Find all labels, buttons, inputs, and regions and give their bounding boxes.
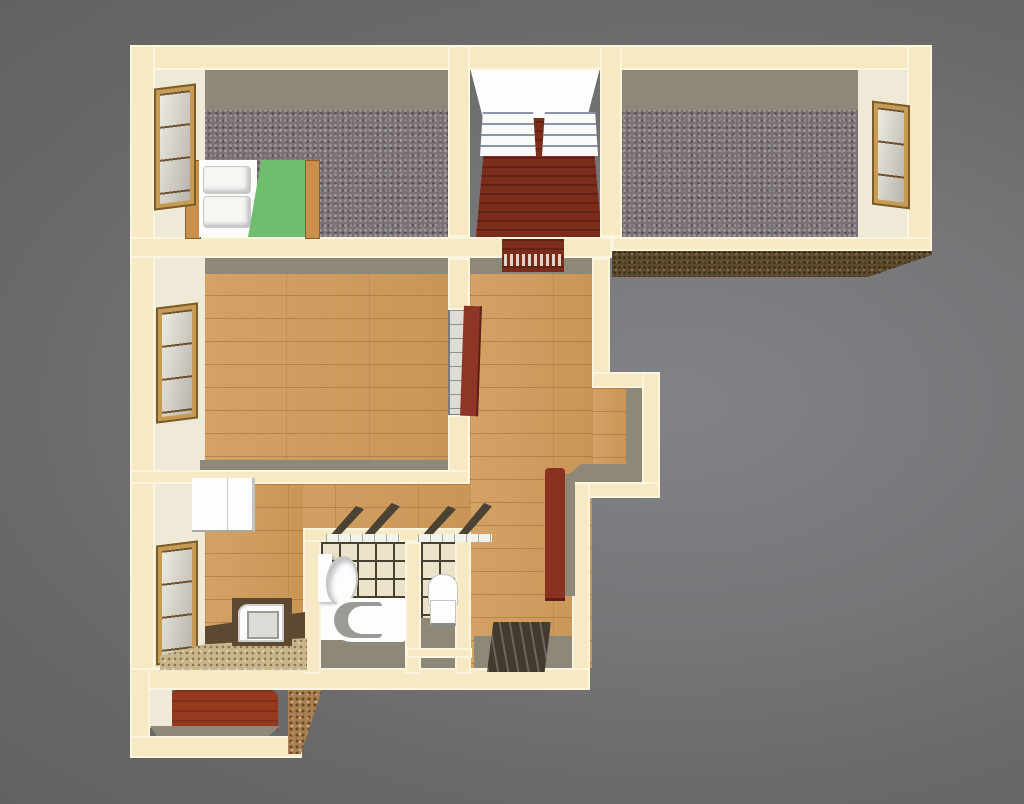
bed-pillow-bottom <box>203 196 251 228</box>
living-room-floor <box>203 272 448 460</box>
wall-wing-right <box>907 45 932 248</box>
closet-doorway-threshold <box>504 254 562 266</box>
wall-alcove-east <box>642 372 660 484</box>
floorplan-render <box>0 0 1024 804</box>
stove-cooktop <box>247 611 279 639</box>
living-room-window <box>156 302 198 423</box>
wall-left <box>130 45 155 690</box>
refrigerator <box>192 478 255 532</box>
balcony-floor <box>170 690 278 730</box>
entry-red-wardrobe <box>545 468 565 601</box>
wall-balcony-bottom <box>130 736 302 758</box>
kitchen-window-panes <box>162 547 192 659</box>
closet-shelving-left <box>480 112 536 156</box>
bed-pillow-top <box>203 166 251 194</box>
bedroom-right-window-panes <box>878 107 904 202</box>
closet-back-wall <box>470 68 600 118</box>
living-room-window-panes <box>162 309 192 417</box>
bedroom-left-window-panes <box>160 90 190 204</box>
balcony-west-face <box>150 690 172 728</box>
wall-living-south <box>130 470 470 484</box>
bedroom-right-carpet <box>622 108 862 239</box>
wardrobe-side-face <box>565 474 575 596</box>
bed-footboard <box>305 160 320 239</box>
wall-bedroom-closet <box>448 45 470 237</box>
bedroom-left-window <box>154 83 196 210</box>
wall-living-hall-upper <box>448 258 470 310</box>
wall-wing-south <box>612 237 932 251</box>
entry-doormat <box>487 622 551 672</box>
bathroom-transom-sill <box>326 534 400 542</box>
kitchen-window <box>156 540 198 665</box>
bedroom-right-window <box>872 101 910 210</box>
closet-shelving-right <box>542 112 598 156</box>
alcove-east-face <box>626 382 642 468</box>
toilet-base <box>430 600 456 626</box>
wall-wc-lower-divider <box>406 648 472 658</box>
wall-top <box>130 45 932 70</box>
wall-living-hall-lower <box>448 415 470 472</box>
wing-south-exterior-band <box>612 250 932 277</box>
wall-hall-east-upper <box>592 258 610 377</box>
living-room-red-door-open <box>460 306 482 417</box>
wc-transom-sill <box>418 534 492 542</box>
bathtub-basin-highlight <box>348 606 404 634</box>
wall-closet-bedroom2 <box>600 45 622 237</box>
balcony-brick-pillar <box>288 690 322 754</box>
wall-alcove-south <box>578 482 660 498</box>
hallway-alcove-floor <box>592 388 626 466</box>
